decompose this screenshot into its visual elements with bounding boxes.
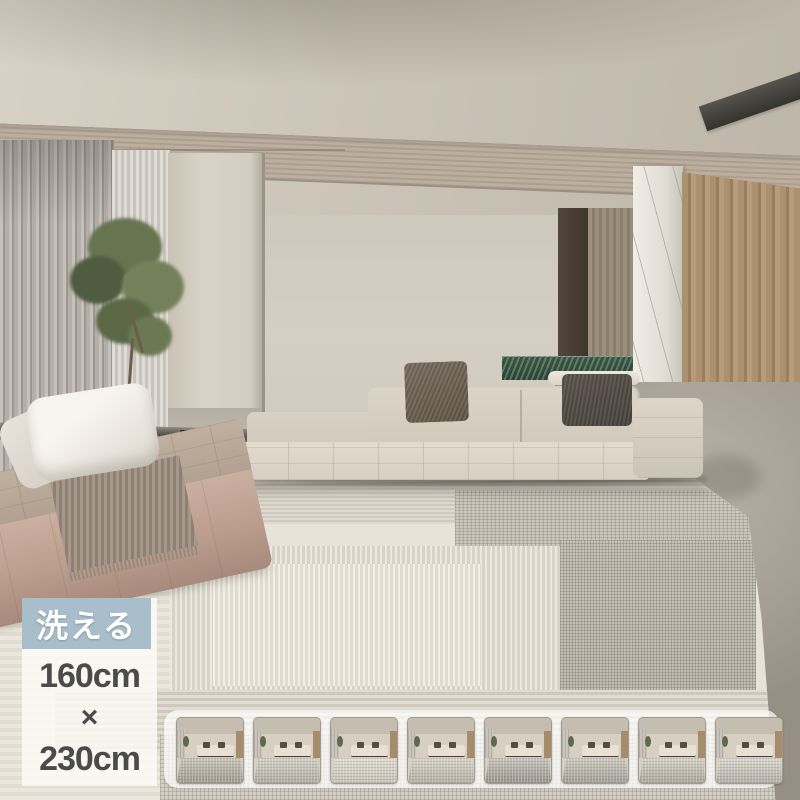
thumb-plant [337,736,343,747]
thumb-wood-wall [775,731,782,758]
thumb-rug [408,758,474,783]
thumb-rug [639,758,705,783]
thumb-plant [491,736,497,747]
thumb-ceiling [408,718,474,735]
thumb-wood-wall [467,731,474,758]
thumb-sofa [351,745,388,757]
thumb-wood-wall [236,731,243,758]
sofa-pillow [562,374,632,426]
washable-badge: 洗える [22,598,151,649]
thumb-cushion [357,742,364,748]
sofa-armrest [633,398,703,478]
size-length-label: 230cm [39,742,140,776]
thumb-plant [414,736,420,747]
thumb-cushion [449,742,456,748]
thumb-sofa [736,745,773,757]
thumb-cushion [588,742,595,748]
thumbnail-item[interactable] [253,717,321,784]
thumb-sofa [505,745,542,757]
thumb-plant [645,736,651,747]
thumb-plant [260,736,266,747]
thumb-ceiling [639,718,705,735]
thumbnail-strip [176,717,783,784]
thumb-rug [562,758,628,783]
niche-wood-panel [588,208,634,358]
washable-badge-label: 洗える [36,601,137,647]
thumb-sofa [197,745,234,757]
thumb-ceiling [562,718,628,735]
thumbnail-item[interactable] [407,717,475,784]
thumb-cushion [680,742,687,748]
thumbnail-item[interactable] [561,717,629,784]
thumb-cushion [434,742,441,748]
dimension-separator: × [81,703,99,733]
thumb-wood-wall [544,731,551,758]
thumb-wood-wall [698,731,705,758]
thumbnail-item[interactable] [176,717,244,784]
thumb-wood-wall [621,731,628,758]
thumb-rug [254,758,320,783]
thumb-cushion [372,742,379,748]
thumb-wood-wall [313,731,320,758]
thumb-cushion [511,742,518,748]
product-photo: 洗える 160cm × 230cm [0,0,800,800]
thumbnail-item[interactable] [484,717,552,784]
thumbnail-item[interactable] [330,717,398,784]
thumb-plant [183,736,189,747]
thumbnail-item[interactable] [715,717,783,784]
thumb-rug [177,758,243,783]
thumb-sofa [428,745,465,757]
thumb-ceiling [716,718,782,735]
thumb-cushion [280,742,287,748]
thumb-cushion [526,742,533,748]
thumb-cushion [603,742,610,748]
thumb-rug [331,758,397,783]
thumb-sofa [274,745,311,757]
thumb-plant [568,736,574,747]
sofa-pillow [404,361,469,423]
thumb-cushion [218,742,225,748]
niche-dark-panel [558,208,588,358]
thumb-cushion [665,742,672,748]
thumbnail-item[interactable] [638,717,706,784]
thumb-cushion [757,742,764,748]
thumb-sofa [582,745,619,757]
thumb-rug [716,758,782,783]
thumb-wood-wall [390,731,397,758]
thumb-rug [485,758,551,783]
size-label: 160cm × 230cm [22,649,157,786]
thumb-ceiling [485,718,551,735]
thumb-ceiling [177,718,243,735]
thumb-sofa [659,745,696,757]
marble-partition [633,166,683,394]
sofa-seat [243,442,649,480]
thumb-cushion [295,742,302,748]
sofa-seam [520,390,522,444]
thumb-plant [722,736,728,747]
thumb-cushion [203,742,210,748]
thumb-ceiling [331,718,397,735]
thumb-cushion [742,742,749,748]
thumb-ceiling [254,718,320,735]
size-width-label: 160cm [39,659,140,693]
